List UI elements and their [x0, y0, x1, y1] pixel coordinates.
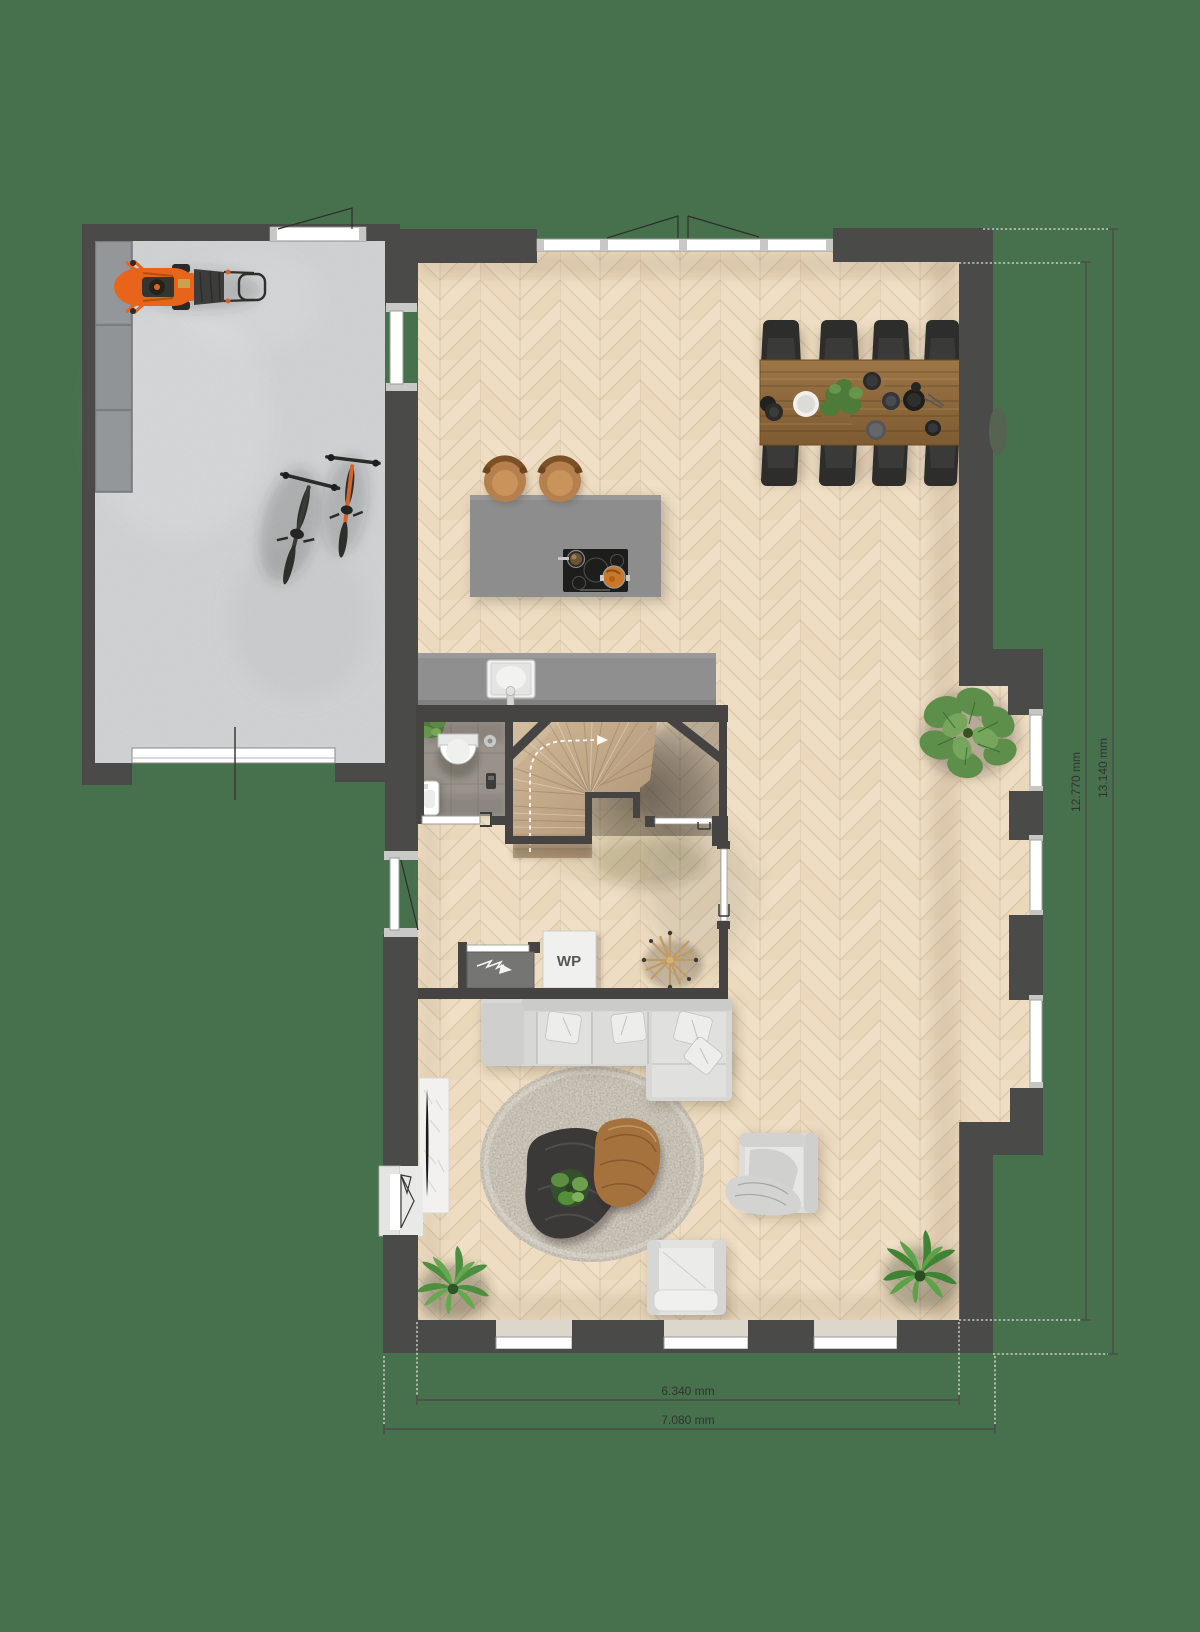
svg-text:7.080 mm: 7.080 mm — [661, 1413, 714, 1427]
svg-text:WP: WP — [557, 953, 581, 970]
svg-text:13.140 mm: 13.140 mm — [1096, 738, 1110, 798]
svg-text:12.770 mm: 12.770 mm — [1069, 752, 1083, 812]
svg-text:6.340 mm: 6.340 mm — [661, 1384, 714, 1398]
